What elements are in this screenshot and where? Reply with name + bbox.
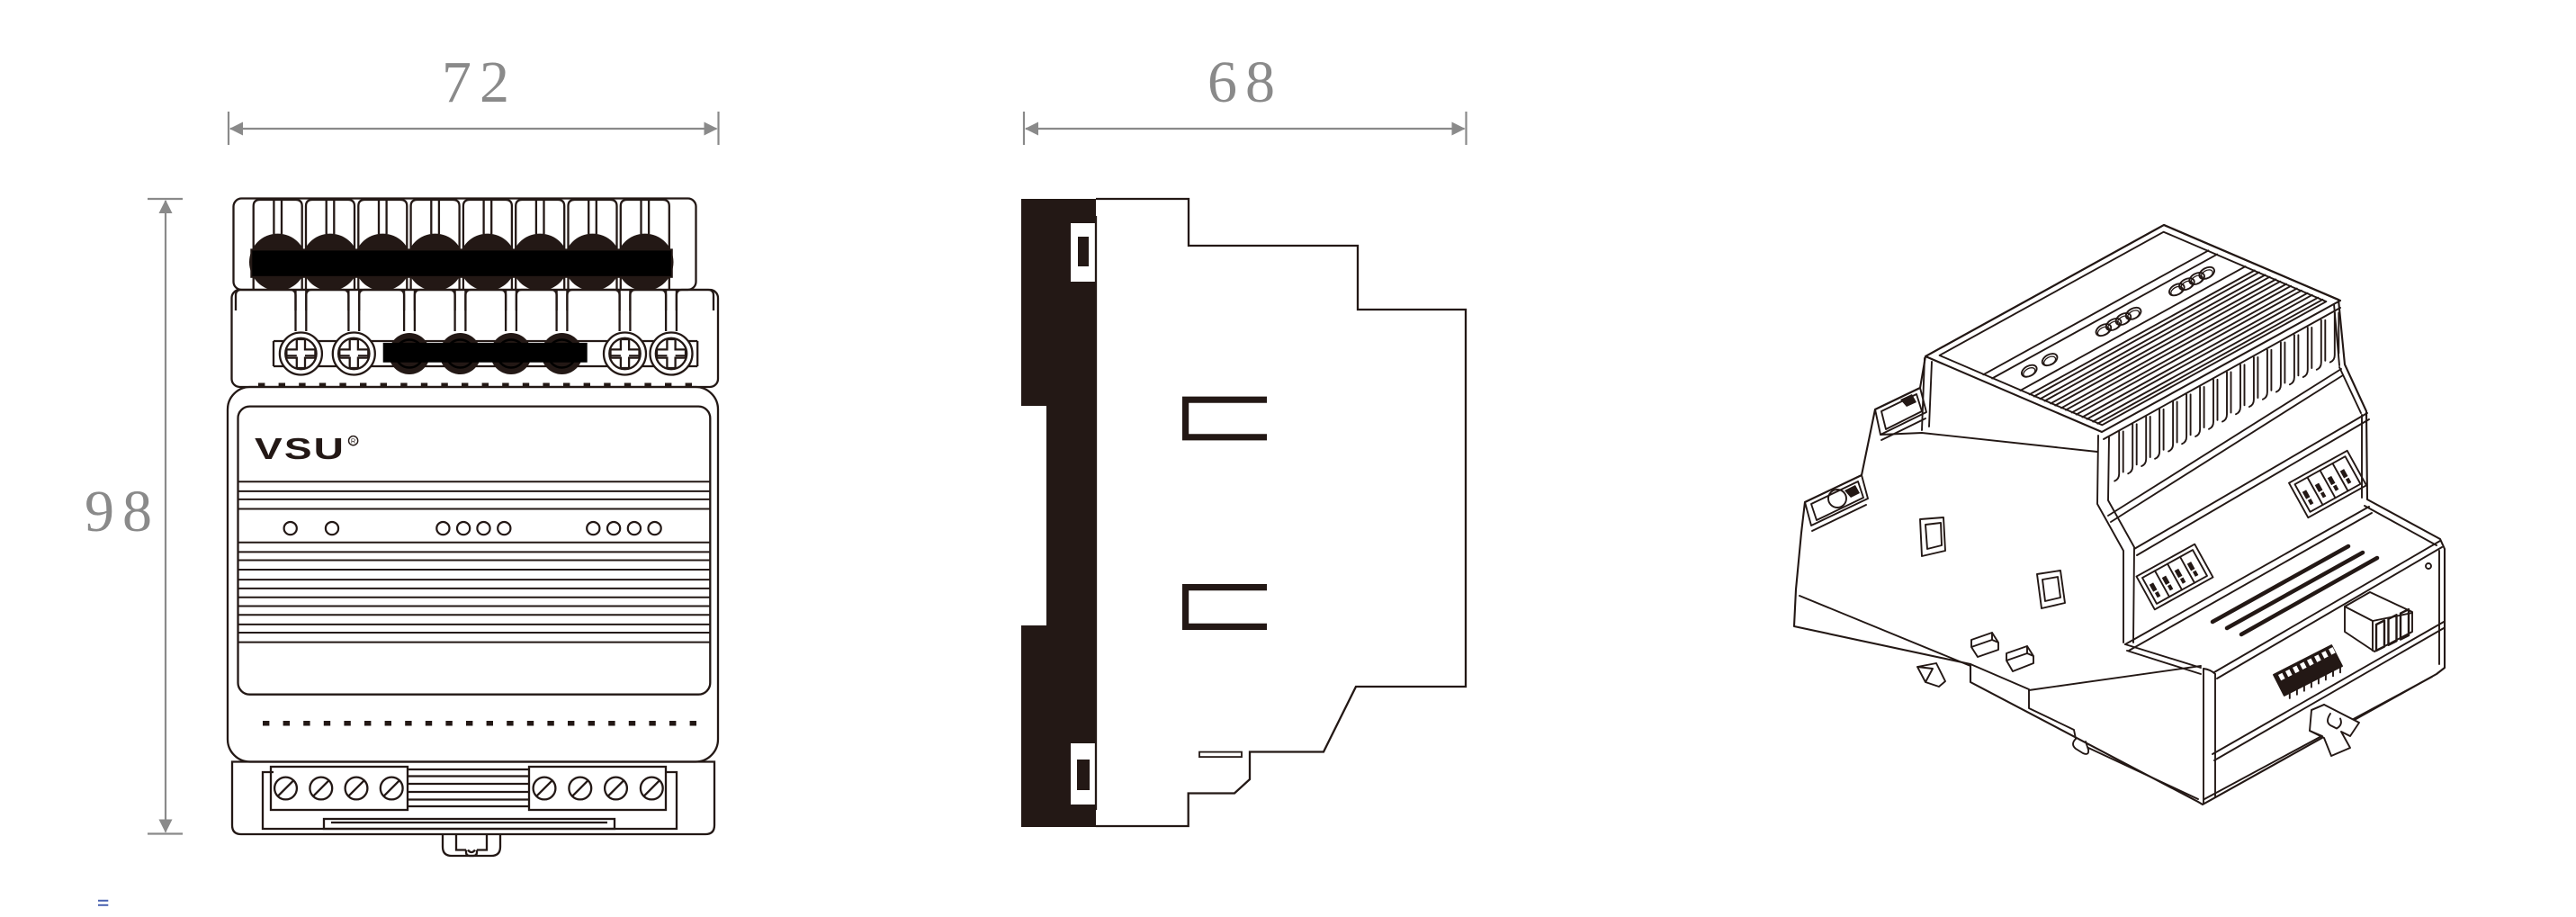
svg-text:R: R — [351, 437, 356, 445]
svg-text:68: 68 — [1207, 49, 1283, 115]
svg-text:72: 72 — [442, 49, 517, 115]
svg-text:VSU: VSU — [255, 432, 346, 465]
svg-text:98: 98 — [85, 479, 160, 544]
